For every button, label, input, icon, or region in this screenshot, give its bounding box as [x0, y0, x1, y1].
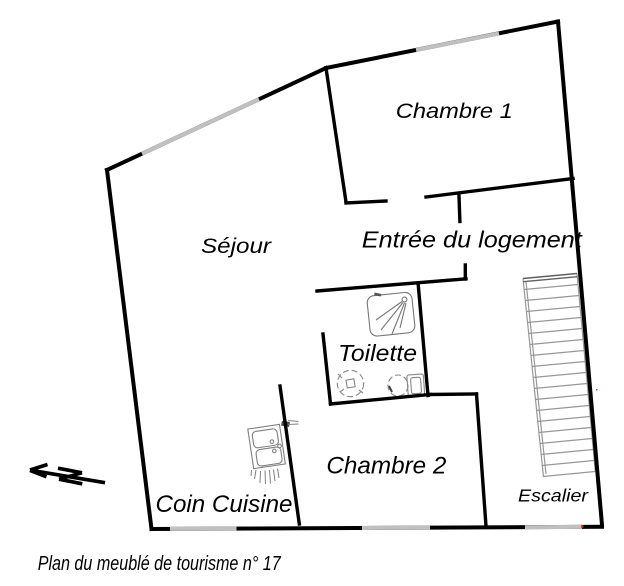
svg-text:Chambre 1: Chambre 1	[396, 98, 513, 123]
svg-text:Escalier: Escalier	[518, 486, 589, 506]
svg-text:Séjour: Séjour	[201, 235, 272, 258]
svg-text:Toilette: Toilette	[338, 340, 417, 366]
svg-text:Entrée du logement: Entrée du logement	[362, 226, 584, 252]
svg-text:Chambre 2: Chambre 2	[326, 453, 446, 480]
svg-text:Plan du meublé de tourisme n°: Plan du meublé de tourisme n° 17	[38, 553, 282, 575]
svg-text:Coin Cuisine: Coin Cuisine	[156, 491, 293, 518]
